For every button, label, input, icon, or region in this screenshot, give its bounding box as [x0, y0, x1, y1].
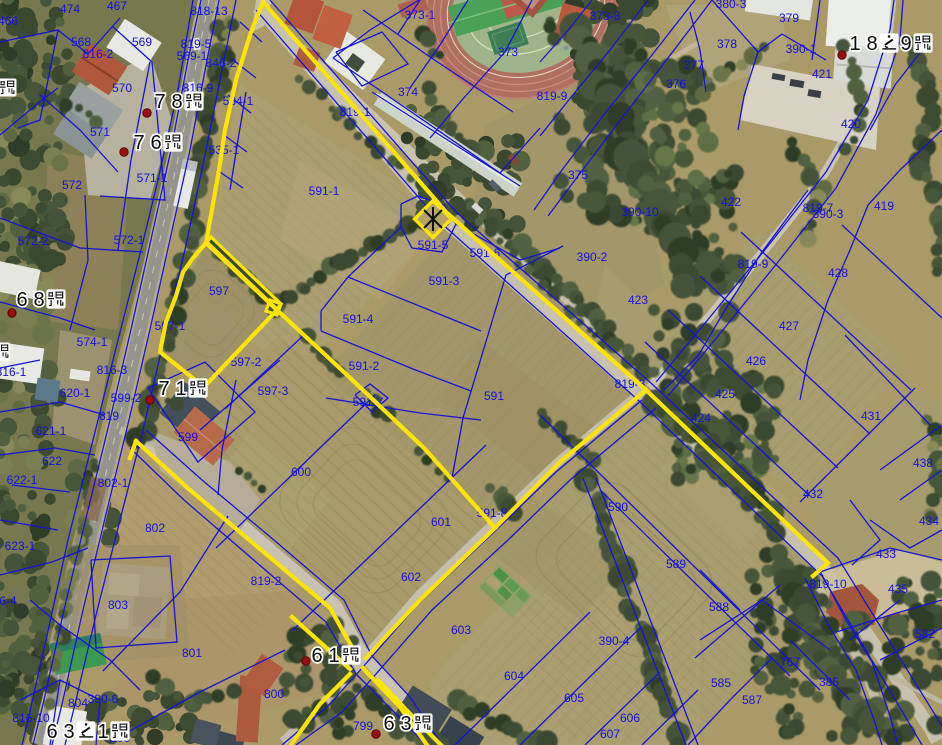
- svg-text:424: 424: [691, 411, 711, 425]
- svg-text:591-2: 591-2: [349, 359, 380, 373]
- svg-text:435: 435: [888, 582, 908, 596]
- svg-text:572-2: 572-2: [18, 234, 49, 248]
- svg-text:373: 373: [498, 45, 518, 59]
- svg-text:799: 799: [353, 719, 373, 733]
- svg-text:423: 423: [628, 293, 648, 307]
- svg-text:8: 8: [33, 289, 44, 311]
- svg-text:585: 585: [711, 676, 731, 690]
- svg-text:571: 571: [90, 125, 110, 139]
- svg-text:379: 379: [779, 11, 799, 25]
- svg-text:800: 800: [264, 687, 284, 701]
- svg-text:602: 602: [401, 570, 421, 584]
- svg-text:767: 767: [780, 655, 800, 669]
- svg-text:6: 6: [46, 721, 57, 743]
- svg-text:420: 420: [841, 117, 861, 131]
- svg-text:600: 600: [291, 465, 311, 479]
- svg-text:373-8: 373-8: [590, 9, 621, 23]
- svg-text:819: 819: [99, 409, 119, 423]
- svg-text:597-2: 597-2: [231, 355, 262, 369]
- svg-text:7: 7: [133, 132, 144, 154]
- svg-text:599-2: 599-2: [111, 391, 142, 405]
- svg-text:570: 570: [112, 81, 132, 95]
- svg-text:534-1: 534-1: [223, 94, 254, 108]
- svg-text:816-10: 816-10: [12, 711, 50, 725]
- svg-text:846-2: 846-2: [206, 56, 237, 70]
- svg-text:380-3: 380-3: [716, 0, 747, 11]
- svg-text:574-1: 574-1: [77, 335, 108, 349]
- svg-text:474: 474: [60, 2, 80, 16]
- svg-text:819-10: 819-10: [809, 577, 847, 591]
- svg-text:620-1: 620-1: [60, 386, 91, 400]
- svg-text:378: 378: [717, 37, 737, 51]
- svg-text:597-1: 597-1: [155, 319, 186, 333]
- svg-text:373-1: 373-1: [405, 8, 436, 22]
- svg-text:1: 1: [97, 721, 108, 743]
- svg-text:422: 422: [721, 195, 741, 209]
- svg-text:597: 597: [209, 284, 229, 298]
- svg-text:421: 421: [812, 67, 832, 81]
- svg-text:1: 1: [175, 378, 186, 400]
- svg-text:390-1: 390-1: [786, 42, 817, 56]
- svg-text:434: 434: [919, 514, 939, 528]
- svg-text:438: 438: [913, 456, 933, 470]
- svg-text:390-10: 390-10: [621, 205, 659, 219]
- svg-text:572: 572: [62, 178, 82, 192]
- svg-text:432: 432: [803, 487, 823, 501]
- svg-text:802: 802: [145, 521, 165, 535]
- svg-text:622-1: 622-1: [7, 473, 38, 487]
- svg-text:385: 385: [819, 675, 839, 689]
- svg-text:467: 467: [107, 0, 127, 13]
- svg-text:3: 3: [63, 721, 74, 743]
- svg-text:816-2: 816-2: [83, 47, 114, 61]
- svg-text:377: 377: [684, 58, 704, 72]
- svg-text:390-4: 390-4: [599, 634, 630, 648]
- svg-text:376: 376: [666, 77, 686, 91]
- svg-text:802-1: 802-1: [98, 476, 129, 490]
- svg-text:819-9: 819-9: [537, 89, 568, 103]
- svg-text:6: 6: [311, 645, 322, 667]
- svg-text:818-13: 818-13: [190, 4, 228, 18]
- svg-text:601: 601: [431, 515, 451, 529]
- svg-text:605: 605: [564, 691, 584, 705]
- svg-text:572-1: 572-1: [114, 233, 145, 247]
- svg-text:582: 582: [915, 627, 935, 641]
- svg-text:390-2: 390-2: [577, 250, 608, 264]
- svg-text:571-1: 571-1: [137, 171, 168, 185]
- svg-text:816-1: 816-1: [0, 365, 27, 379]
- svg-text:803: 803: [108, 598, 128, 612]
- svg-text:621-1: 621-1: [36, 424, 67, 438]
- svg-text:8: 8: [866, 33, 877, 55]
- svg-text:801: 801: [182, 646, 202, 660]
- svg-text:606: 606: [620, 711, 640, 725]
- svg-text:3: 3: [400, 713, 411, 735]
- svg-text:591-3: 591-3: [429, 274, 460, 288]
- svg-text:591: 591: [484, 389, 504, 403]
- svg-text:569-1: 569-1: [177, 49, 208, 63]
- svg-text:591-1: 591-1: [309, 184, 340, 198]
- svg-text:426: 426: [746, 354, 766, 368]
- svg-text:607: 607: [600, 727, 620, 741]
- svg-text:589: 589: [666, 557, 686, 571]
- svg-text:428: 428: [828, 266, 848, 280]
- svg-text:375: 375: [568, 168, 588, 182]
- svg-text:569: 569: [132, 35, 152, 49]
- svg-text:591-5: 591-5: [418, 238, 449, 252]
- svg-text:819-2: 819-2: [251, 574, 282, 588]
- svg-text:623-1: 623-1: [5, 539, 36, 553]
- svg-text:6-4: 6-4: [0, 594, 17, 608]
- svg-text:8: 8: [171, 91, 182, 113]
- svg-text:599: 599: [178, 430, 198, 444]
- svg-text:427: 427: [779, 319, 799, 333]
- svg-text:6: 6: [16, 289, 27, 311]
- svg-text:390-3: 390-3: [813, 207, 844, 221]
- svg-text:7: 7: [158, 378, 169, 400]
- svg-text:597-3: 597-3: [258, 384, 289, 398]
- svg-text:431: 431: [861, 409, 881, 423]
- svg-text:419: 419: [874, 199, 894, 213]
- svg-text:1: 1: [849, 33, 860, 55]
- svg-text:591-4: 591-4: [343, 312, 374, 326]
- svg-text:603: 603: [451, 623, 471, 637]
- svg-text:1: 1: [328, 645, 339, 667]
- svg-text:819-5: 819-5: [181, 37, 212, 51]
- svg-text:390-6: 390-6: [88, 692, 119, 706]
- svg-text:587: 587: [742, 693, 762, 707]
- svg-text:604: 604: [504, 669, 524, 683]
- svg-text:374: 374: [398, 85, 418, 99]
- svg-text:425: 425: [715, 387, 735, 401]
- svg-text:819-9: 819-9: [738, 257, 769, 271]
- svg-text:590: 590: [608, 500, 628, 514]
- svg-text:6: 6: [150, 132, 161, 154]
- svg-text:466: 466: [0, 14, 18, 28]
- svg-text:804: 804: [68, 696, 88, 710]
- svg-text:9: 9: [900, 33, 911, 55]
- svg-text:588: 588: [709, 600, 729, 614]
- svg-text:816-3: 816-3: [97, 363, 128, 377]
- svg-text:622: 622: [42, 454, 62, 468]
- svg-text:7: 7: [154, 91, 165, 113]
- svg-text:433: 433: [876, 547, 896, 561]
- svg-text:6: 6: [383, 713, 394, 735]
